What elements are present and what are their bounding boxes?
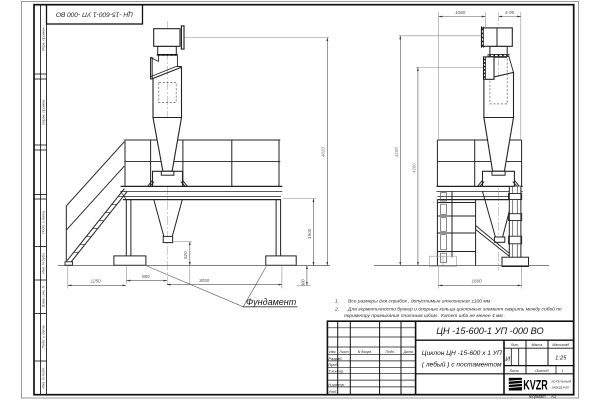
svg-text:ЦН -15-600-1 УП -000 ВО: ЦН -15-600-1 УП -000 ВО — [56, 10, 133, 17]
svg-text:Лист: Лист — [338, 350, 348, 354]
svg-text:Инв. N подл.: Инв. N подл. — [41, 367, 45, 389]
svg-text:Лит.: Лит. — [510, 343, 519, 347]
svg-text:И: И — [505, 356, 510, 363]
svg-text:Н.контр.: Н.контр. — [328, 382, 344, 387]
svg-text:Масса: Масса — [531, 343, 542, 347]
svg-text:Фундамент: Фундамент — [246, 297, 297, 307]
svg-text:1250: 1250 — [91, 279, 102, 284]
svg-text:Дата: Дата — [403, 350, 413, 354]
svg-text:Т.контр.: Т.контр. — [328, 369, 344, 374]
svg-text:Формат: Формат — [529, 394, 546, 399]
svg-text:Разраб.: Разраб. — [328, 356, 342, 361]
svg-text:Масштаб: Масштаб — [552, 343, 570, 347]
svg-text:А3: А3 — [550, 394, 557, 399]
svg-text:ЦН -15-600-1 УП -000 ВО: ЦН -15-600-1 УП -000 ВО — [436, 326, 543, 336]
svg-text:ЗАВОД РЭП: ЗАВОД РЭП — [552, 386, 571, 390]
svg-text:2.: 2. — [334, 306, 339, 312]
svg-text:Справ. примен.: Справ. примен. — [41, 99, 45, 126]
svg-text:880: 880 — [142, 274, 150, 279]
svg-text:Перв. примен.: Перв. примен. — [41, 27, 45, 52]
svg-text:Для герметичности бункер и опо: Для герметичности бункер и опорные кольц… — [347, 305, 562, 312]
svg-text:КОТЕЛЬНЫЙ: КОТЕЛЬНЫЙ — [552, 380, 572, 384]
svg-text:периметру примыкания плотным ш: периметру примыкания плотным шбом . Кате… — [344, 313, 505, 319]
svg-text:Лист: Лист — [509, 369, 520, 373]
svg-text:1: 1 — [562, 369, 564, 373]
svg-text:4260: 4260 — [411, 163, 416, 173]
svg-text:Подп. и дата: Подп. и дата — [41, 325, 45, 348]
svg-text:Изм: Изм — [329, 350, 336, 354]
svg-text:Листоб: Листоб — [534, 369, 550, 373]
svg-text:1500: 1500 — [307, 228, 312, 239]
svg-text:Все размеры для спрабок , допу: Все размеры для спрабок , допустимые отк… — [348, 299, 491, 305]
svg-text:1.: 1. — [335, 299, 339, 305]
svg-text:Подп.: Подп. — [386, 350, 395, 354]
svg-text:1:25: 1:25 — [555, 356, 567, 362]
svg-text:4020: 4020 — [321, 147, 326, 157]
svg-text:3050: 3050 — [199, 278, 210, 283]
svg-text:Утб.: Утб. — [328, 389, 337, 394]
svg-text:300: 300 — [300, 279, 305, 287]
svg-text:Инв. N дубл.: Инв. N дубл. — [41, 252, 45, 273]
svg-text:4100: 4100 — [394, 147, 399, 157]
svg-text:( лебый ) с постаментом: ( лебый ) с постаментом — [422, 360, 502, 368]
svg-text:KVZR: KVZR — [523, 377, 548, 392]
svg-text:1080: 1080 — [455, 10, 466, 15]
svg-text:Циклон ЦН -15-600 х 1 УП: Циклон ЦН -15-600 х 1 УП — [422, 350, 502, 357]
svg-text:520: 520 — [183, 251, 188, 259]
svg-text:N докум.: N докум. — [358, 350, 372, 354]
svg-text:4-95: 4-95 — [505, 10, 515, 15]
svg-text:Взам. инв. N: Взам. инв. N — [41, 285, 45, 307]
svg-text:Проб.: Проб. — [328, 362, 338, 367]
svg-text:Подп. и дата: Подп. и дата — [41, 211, 45, 234]
svg-text:1800: 1800 — [472, 279, 483, 284]
